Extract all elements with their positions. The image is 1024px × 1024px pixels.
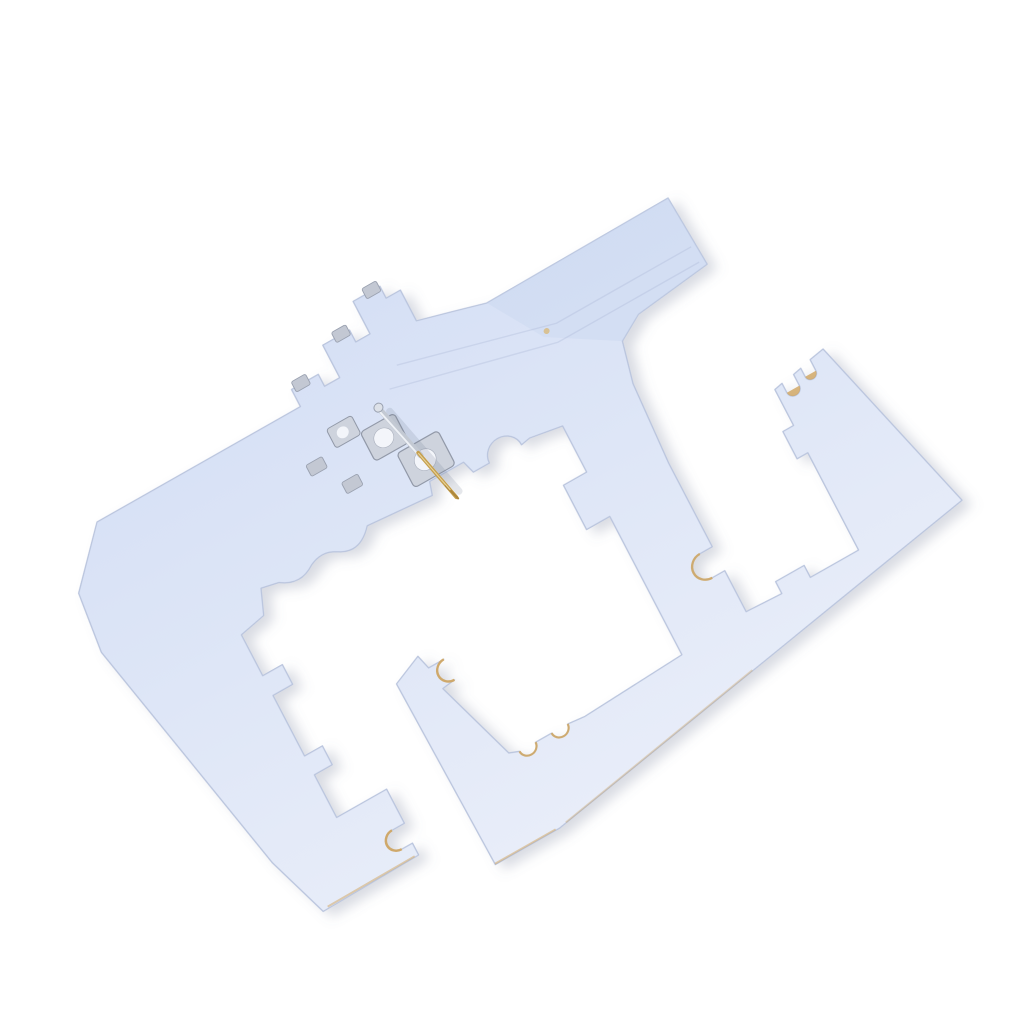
insulator-sheet-photo: [0, 0, 1024, 1024]
product-photo: [0, 0, 1024, 1024]
